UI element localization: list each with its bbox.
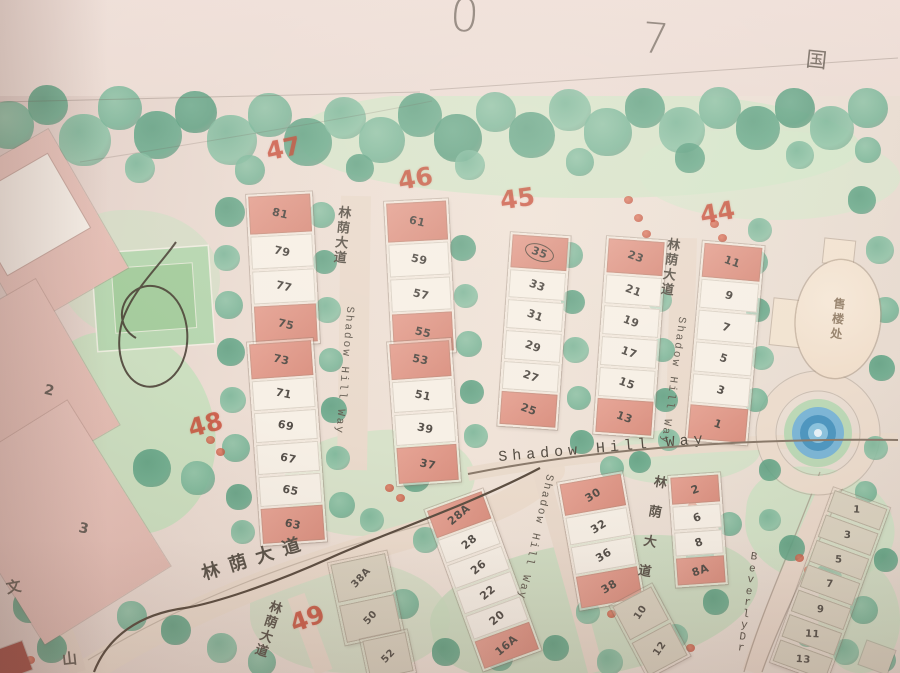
red-annotation: 44 [698, 195, 737, 230]
site-plan-photo: { "photo": { "top_digits": { "left": "0"… [0, 0, 900, 673]
red-annotation: 47 [263, 131, 303, 167]
red-annotation: 48 [185, 406, 226, 443]
red-annotation: 49 [286, 599, 329, 638]
red-annotations: 474645444849 [0, 0, 900, 673]
red-annotation: 46 [396, 161, 435, 196]
red-annotation: 45 [498, 182, 536, 216]
